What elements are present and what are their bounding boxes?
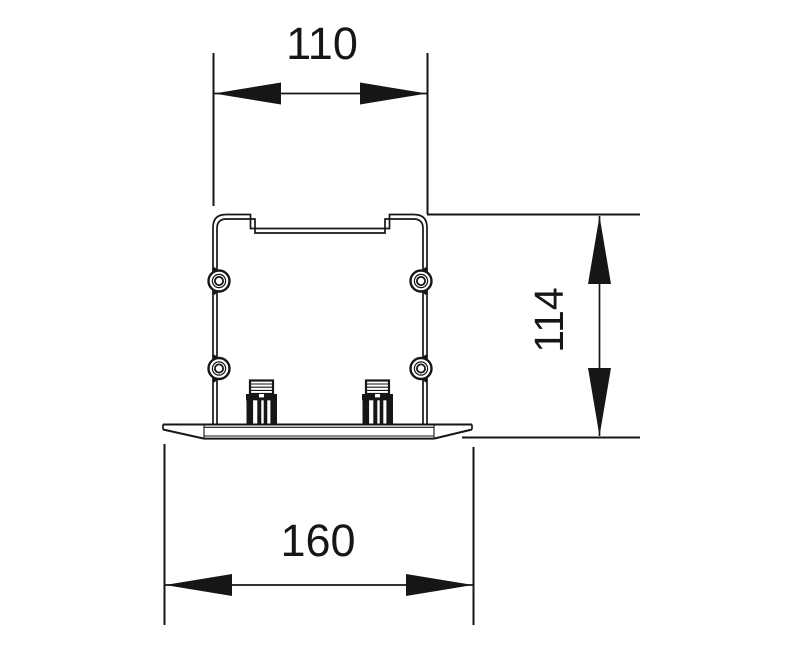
terminal-leg — [373, 400, 377, 425]
terminal-leg — [363, 400, 370, 425]
terminal-left — [246, 381, 277, 425]
profile-inner-line — [217, 219, 423, 425]
arrowhead-down-icon — [588, 368, 611, 436]
dimension-label-right: 114 — [526, 287, 572, 352]
terminal-leg — [264, 400, 268, 425]
profile-outer-line — [213, 215, 427, 425]
dimension-label-bottom: 160 — [280, 515, 355, 566]
dimension-label-top: 110 — [286, 18, 358, 69]
arrowhead-right-icon — [360, 83, 427, 105]
weld-nut-bottom-right — [411, 354, 432, 382]
base-plate — [163, 425, 472, 439]
nut-outer-ring — [411, 271, 432, 292]
flange-notch — [259, 394, 264, 397]
arrowhead-right-icon — [406, 574, 473, 596]
terminal-leg — [257, 400, 261, 425]
flange-notch — [375, 394, 380, 397]
nut-outer-ring — [209, 358, 230, 379]
terminal-leg — [386, 400, 393, 425]
terminal-leg — [380, 400, 384, 425]
arrowhead-up-icon — [588, 216, 611, 284]
terminal-leg — [247, 400, 254, 425]
weld-nut-top-right — [411, 267, 432, 295]
arrowhead-left-icon — [214, 83, 281, 105]
terminal-leg — [270, 400, 277, 425]
weld-nut-bottom-left — [209, 354, 230, 382]
terminal-right — [362, 381, 393, 425]
technical-drawing: 110 114 160 — [0, 0, 800, 650]
dimension-height-right: 114 — [427, 215, 640, 438]
weld-nuts — [209, 267, 432, 383]
weld-nut-top-left — [209, 267, 230, 295]
nut-outer-ring — [411, 358, 432, 379]
dimension-width-bottom: 160 — [165, 444, 474, 625]
dimension-width-top: 110 — [214, 18, 428, 214]
bracket-profile — [213, 215, 427, 425]
arrowhead-left-icon — [165, 574, 232, 596]
plate-left-chamfer — [163, 430, 204, 439]
drawing-canvas: 110 114 160 — [0, 0, 800, 650]
terminal-studs — [246, 381, 393, 425]
nut-outer-ring — [209, 271, 230, 292]
